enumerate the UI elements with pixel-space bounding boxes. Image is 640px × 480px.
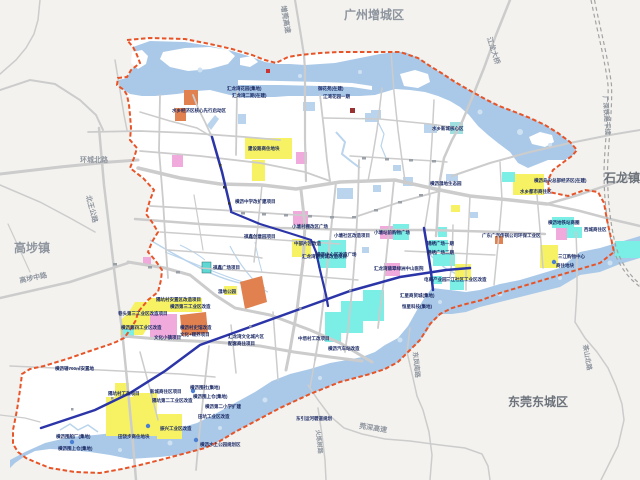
- svg-text:隔坑村工改项目: 隔坑村工改项目: [108, 390, 140, 397]
- svg-text:祺鑫广场项目: 祺鑫广场项目: [213, 264, 240, 271]
- svg-text:水乡都市商住区: 水乡都市商住区: [520, 188, 552, 195]
- svg-text:水乡经济区核心先行启动区: 水乡经济区核心先行启动区: [172, 107, 226, 114]
- svg-text:恒星科技(集地): 恒星科技(集地): [402, 303, 432, 310]
- svg-text:横沥辖700㎡安置地: 横沥辖700㎡安置地: [54, 365, 95, 372]
- svg-text:锦绣广场一期: 锦绣广场一期: [427, 240, 454, 247]
- svg-text:横沥第四工业区改造: 横沥第四工业区改造: [120, 324, 162, 331]
- svg-text:祺鑫创意园项目: 祺鑫创意园项目: [244, 233, 276, 240]
- svg-text:水乡新城核心区: 水乡新城核心区: [432, 125, 464, 132]
- svg-text:横沥汽车站改造: 横沥汽车站改造: [327, 345, 360, 352]
- svg-text:高埗镇: 高埗镇: [14, 240, 50, 255]
- svg-text:横沥岛尖总部经济区(在建): 横沥岛尖总部经济区(在建): [533, 177, 587, 184]
- svg-text:巷头第三工业区改造项目: 巷头第三工业区改造项目: [117, 310, 168, 317]
- svg-text:隔坑第二工业区改造: 隔坑第二工业区改造: [152, 397, 193, 404]
- svg-text:小塘社区改造项目: 小塘社区改造项目: [334, 232, 370, 239]
- svg-text:田坑工业区改造: 田坑工业区改造: [198, 413, 230, 420]
- svg-text:石龙镇: 石龙镇: [603, 170, 640, 185]
- svg-text:御花苑(在建): 御花苑(在建): [317, 85, 344, 92]
- svg-text:文化小镇项目: 文化小镇项目: [154, 334, 181, 341]
- svg-text:环城北路: 环城北路: [80, 155, 109, 164]
- svg-text:湿地公园: 湿地公园: [218, 288, 236, 295]
- svg-text:田饶步商住地块: 田饶步商住地块: [118, 433, 150, 440]
- svg-text:横沥中学改扩建项目: 横沥中学改扩建项目: [234, 198, 276, 205]
- svg-text:横沥湿地生态园: 横沥湿地生态园: [429, 180, 462, 187]
- svg-text:横沥地铁站商圈: 横沥地铁站商圈: [547, 219, 580, 226]
- svg-text:汇龙湾文化城片区: 汇龙湾文化城片区: [228, 333, 264, 340]
- svg-text:中坜村工改项目: 中坜村工改项目: [298, 335, 330, 342]
- svg-text:三江社区工业区改造: 三江社区工业区改造: [446, 276, 487, 283]
- svg-text:横沥围社(集地): 横沥围社(集地): [189, 384, 220, 391]
- svg-text:隔坑村安置区改造项目: 隔坑村安置区改造项目: [156, 296, 201, 303]
- svg-text:汇龙湾翡翠绿洲中山医院: 汇龙湾翡翠绿洲中山医院: [374, 265, 424, 272]
- svg-text:商住地块: 商住地块: [556, 262, 574, 269]
- svg-text:电商产业园: 电商产业园: [424, 276, 447, 283]
- svg-text:建设路商住地块: 建设路商住地块: [247, 145, 280, 152]
- svg-text:广州增城区: 广州增城区: [344, 7, 404, 22]
- svg-text:广东广汽传祺公司环保工业区: 广东广汽传祺公司环保工业区: [482, 232, 541, 239]
- svg-text:西城商住区: 西城商住区: [584, 226, 607, 233]
- svg-text:东莞东城区: 东莞东城区: [508, 394, 568, 409]
- svg-text:中部片区改造: 中部片区改造: [294, 240, 321, 247]
- svg-text:配套商住项目: 配套商住项目: [228, 340, 255, 347]
- svg-text:横沥村史馆改造: 横沥村史馆改造: [179, 324, 212, 331]
- svg-text:横沥围上仓(集地): 横沥围上仓(集地): [192, 393, 228, 400]
- svg-text:横沥第二小学扩建: 横沥第二小学扩建: [204, 403, 241, 410]
- svg-text:横沥围上仓(集地): 横沥围上仓(集地): [57, 445, 93, 452]
- svg-text:新城商住区项目: 新城商住区项目: [150, 388, 182, 395]
- svg-text:小塘站前购物广场: 小塘站前购物广场: [374, 229, 410, 236]
- svg-text:横沥水上公园规划区: 横沥水上公园规划区: [199, 441, 241, 448]
- svg-text:横沥第三工业区改造: 横沥第三工业区改造: [169, 303, 211, 310]
- svg-text:三江购物中心: 三江购物中心: [558, 253, 585, 260]
- svg-text:东引运河碧道规划: 东引运河碧道规划: [296, 415, 332, 422]
- svg-text:小塘村棚改区广场: 小塘村棚改区广场: [292, 223, 328, 230]
- svg-text:文化+颐养项目: 文化+颐养项目: [180, 331, 210, 338]
- svg-text:振兴工业区改造: 振兴工业区改造: [160, 425, 192, 432]
- svg-text:江湾花园一期: 江湾花园一期: [323, 93, 350, 100]
- svg-text:汇龙湾二期(在建): 汇龙湾二期(在建): [232, 92, 267, 99]
- svg-text:汇龙湾花园(集地): 汇龙湾花园(集地): [227, 85, 262, 92]
- svg-text:横沥中心区改造广场: 横沥中心区改造广场: [315, 251, 357, 258]
- svg-text:锦绣广场二期: 锦绣广场二期: [427, 249, 454, 256]
- svg-text:汇星商贸城(集地): 汇星商贸城(集地): [400, 292, 435, 299]
- svg-text:横沥围船厂(集地): 横沥围船厂(集地): [55, 433, 91, 440]
